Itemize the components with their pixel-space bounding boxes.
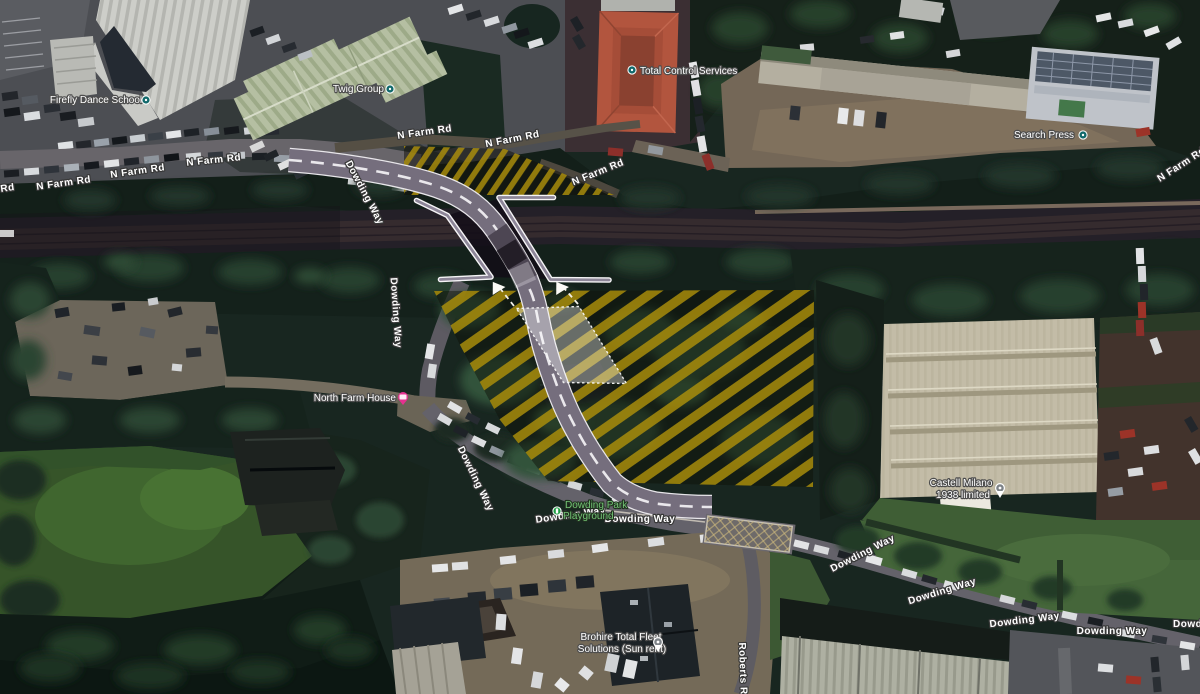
svg-text:Dowding Way: Dowding Way [1077,626,1148,637]
svg-text:1938 limited: 1938 limited [936,490,990,501]
svg-text:Solutions (Sun rent): Solutions (Sun rent) [578,644,666,655]
svg-text:Dowding Way: Dowding Way [1173,619,1200,630]
svg-text:Playground: Playground [563,511,614,522]
svg-text:Roberts Rd: Roberts Rd [736,642,749,694]
svg-text:Search Press: Search Press [1014,130,1074,141]
svg-text:Total Control Services: Total Control Services [640,66,737,77]
svg-text:Twig Group: Twig Group [333,84,385,95]
svg-text:Dowding Way: Dowding Way [605,514,676,525]
svg-text:Firefly Dance School: Firefly Dance School [50,95,142,106]
svg-text:North Farm House: North Farm House [314,393,397,404]
svg-text:Brohire Total Fleet: Brohire Total Fleet [581,632,662,643]
svg-text:Castell Milano: Castell Milano [930,478,993,489]
svg-text:Dowding Park: Dowding Park [565,500,628,511]
svg-text:Rd: Rd [0,182,16,195]
